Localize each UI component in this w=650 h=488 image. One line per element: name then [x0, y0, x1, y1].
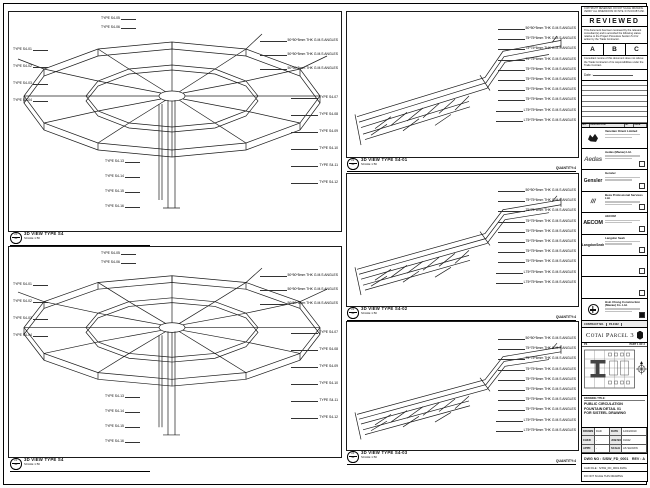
leader-label: L75*75*6mm THK G.M.S ANGLES: [524, 429, 576, 433]
venetian-logo-icon: [588, 134, 598, 142]
leader-label: TYPE S4-13: [105, 160, 124, 164]
consultant-row: Venetian Orient Limited: [582, 128, 647, 149]
leader-label: 75*75*6mm THK G.M.S ANGLES: [526, 47, 576, 51]
langdonseah-logo: LangdonSeah: [582, 235, 604, 255]
date-label: Date :: [584, 73, 593, 77]
leader-label: L75*75*6mm THK G.M.S ANGLES: [524, 281, 576, 285]
leader-label: 75*75*6mm THK G.M.S ANGLES: [526, 250, 576, 254]
leader-label: TYPE S4-15: [105, 190, 124, 194]
date-blank[interactable]: [593, 72, 633, 76]
copyright-note: COPYRIGHT RESERVED. DO NOT SCALE DRAWING…: [582, 7, 647, 16]
info-value: DAD: [595, 428, 610, 436]
leader-label: TYPE S4-04: [13, 99, 32, 103]
contract-strip: CONTRACT NO. P3-0102: [582, 321, 647, 328]
stamp-checkbox[interactable]: [639, 268, 645, 274]
address-line: [605, 134, 640, 135]
leader-label: TYPE S4-09: [319, 130, 338, 134]
view-panel-s4-02: 50*50*5mm THK G.M.S ANGLES75*75*6mm THK …: [346, 173, 579, 307]
leader-label: 75*75*6mm THK G.M.S ANGLES: [526, 408, 576, 412]
leader-label: 75*75*6mm THK G.M.S ANGLES: [526, 98, 576, 102]
company-name: Gensler: [605, 172, 646, 175]
view-scale: SCALE 1:50: [24, 237, 64, 240]
info-label: DATE: [610, 428, 622, 436]
leader-label: L75*75*6mm THK G.M.S ANGLES: [524, 271, 576, 275]
company-logo: [582, 128, 604, 148]
leader-label: TYPE S4-06: [101, 261, 120, 265]
consultant-row: [582, 256, 647, 277]
address-line: [605, 308, 640, 309]
leader-label: TYPE S4-12: [319, 181, 338, 185]
status-box-b[interactable]: B: [604, 44, 626, 55]
view-scale: SCALE 1:50: [361, 312, 407, 315]
consultant-row: Hsin Chong Construction (Macau) Co. Ltd.: [582, 299, 647, 320]
aecom-logo: AECOM: [582, 213, 604, 233]
leader-label: 75*75*6mm THK G.M.S ANGLES: [526, 378, 576, 382]
leader-label: 75*75*6mm THK G.M.S ANGLES: [526, 220, 576, 224]
drawing-title-label: DRAWING TITLE:: [584, 397, 645, 401]
company-logo: [582, 277, 604, 297]
status-abc-row: ABC: [582, 44, 647, 56]
consultant-rows: Venetian Orient Limited Aedas Aedas (Mac…: [582, 128, 647, 322]
leader-label: TYPE S4-09: [319, 365, 338, 369]
contract-label: CONTRACT NO.: [582, 323, 607, 326]
aedas-logo: Aedas: [582, 149, 604, 169]
leader-label: TYPE S4-10: [319, 382, 338, 386]
leader-label: 75*75*6mm THK G.M.S ANGLES: [526, 58, 576, 62]
leader-label: 75*75*6mm THK G.M.S ANGLES: [526, 88, 576, 92]
view-panel-type-s4-bottom: TYPE S4-01TYPE S4-02TYPE S4-03TYPE S4-04…: [8, 246, 342, 458]
company-name: Hsin Chong Construction (Macau) Co. Ltd.: [605, 301, 646, 307]
info-label: APPD: [582, 445, 595, 453]
address-line: [605, 222, 632, 223]
consultant-row: [582, 277, 647, 298]
consultant-row: LangdonSeah Langdon Seah: [582, 235, 647, 256]
caption-left-bottom: 21S4 3D VIEW TYPE S4SCALE 1:50: [10, 458, 150, 472]
consultant-row: AECOM AECOM: [582, 213, 647, 234]
leader-label: 75*75*6mm THK G.M.S ANGLES: [526, 68, 576, 72]
drawing-title-line: FOR S/STEEL DRAWING: [584, 411, 645, 415]
gensler-logo: Gensler: [582, 170, 604, 190]
contract-value: P3-0102: [607, 323, 622, 326]
detail-bubble: 23S4: [347, 307, 359, 319]
leader-label: TYPE S4-14: [105, 175, 124, 179]
sheet-number: S4: [349, 163, 357, 167]
stamp-checkbox[interactable]: [639, 290, 645, 296]
company-name: AECOM: [605, 215, 646, 218]
address-line: [605, 220, 640, 221]
company-name: Beca Professional Services Ltd.: [605, 194, 646, 200]
leader-label: TYPE S4-08: [319, 113, 338, 117]
cad-file-label: CAD FILE :: [584, 466, 598, 470]
reviewed-paragraph-1: This document has been reviewed by the r…: [582, 27, 647, 44]
info-value: -: [595, 445, 610, 453]
status-box-c[interactable]: C: [626, 44, 647, 55]
view-panel-s4-03: 50*50*5mm THK G.M.S ANGLES75*75*6mm THK …: [346, 321, 579, 451]
drawing-sheet: { "panels": { "left": [ { "bubble": {"to…: [0, 0, 650, 488]
leader-label: TYPE S4-14: [105, 410, 124, 414]
reviewed-stamp-title: REVIEWED: [582, 16, 647, 27]
leader-label: 50*50*5mm THK G.M.S ANGLES: [288, 67, 338, 71]
leader-label: 50*50*5mm THK G.M.S ANGLES: [526, 189, 576, 193]
address-line: [605, 311, 632, 312]
drawing-title-box: DRAWING TITLE: PUBLIC CIRCULATIONFOUNTAI…: [582, 396, 647, 428]
leader-label: TYPE S4-12: [319, 416, 338, 420]
cad-file-value: S/SW_FD_0001.DWG: [599, 466, 627, 470]
consultant-row: Gensler Gensler: [582, 170, 647, 191]
leader-label: TYPE S4-15: [105, 425, 124, 429]
dwg-no: DWG NO : S/SW_FD_0001: [584, 457, 628, 461]
leader-label: TYPE S4-07: [319, 96, 338, 100]
leader-label: TYPE S4-02: [13, 65, 32, 69]
stamp-checkbox[interactable]: [639, 312, 645, 318]
leader-label: TYPE S4-16: [105, 205, 124, 209]
company-logo: [582, 256, 604, 276]
date-line: Date :: [582, 70, 647, 81]
key-plan: P3 PART 1 OF 2: [582, 343, 647, 396]
view-scale: SCALE 1:50: [361, 456, 407, 459]
status-box-a[interactable]: A: [582, 44, 604, 55]
leader-label: 75*75*6mm THK G.M.S ANGLES: [526, 37, 576, 41]
sheet-number: S4: [12, 463, 20, 467]
leader-label: TYPE S4-16: [105, 440, 124, 444]
detail-bubble: 21S4: [10, 458, 22, 470]
leader-label: TYPE S4-05: [101, 252, 120, 256]
stamp-checkbox[interactable]: [639, 204, 645, 210]
leader-label: TYPE S4-11: [319, 399, 338, 403]
keyplan-right-label: PART 1 OF 2: [629, 343, 645, 346]
leader-label: TYPE S4-04: [13, 334, 32, 338]
info-label: DRAWN: [582, 428, 595, 436]
quantity-label: QUANTITY:4: [556, 166, 576, 170]
hsinchong-logo-icon: [588, 304, 599, 315]
revision-header: NO.DESCRIPTIONBYDATE: [582, 123, 647, 127]
leader-label: 50*50*5mm THK G.M.S ANGLES: [288, 274, 338, 278]
company-name: Aedas (Macau) Ltd.: [605, 151, 646, 154]
info-value: AS SHOWN: [622, 445, 647, 453]
leader-label: 50*50*5mm THK G.M.S ANGLES: [526, 337, 576, 341]
cad-file-row: CAD FILE : S/SW_FD_0001.DWG: [582, 464, 647, 472]
project-emblem-icon: [637, 331, 643, 340]
leader-label: 75*75*6mm THK G.M.S ANGLES: [526, 368, 576, 372]
leader-label: 75*75*6mm THK G.M.S ANGLES: [526, 398, 576, 402]
leader-label: TYPE S4-06: [101, 26, 120, 30]
quantity-label: QUANTITY:4: [556, 315, 576, 319]
project-row: Cotai Parcel 3: [582, 328, 647, 343]
detail-bubble: 24S4: [347, 451, 359, 463]
company-info: Venetian Orient Limited: [604, 128, 647, 148]
leader-label: L75*75*6mm THK G.M.S ANGLES: [524, 109, 576, 113]
address-line: [605, 158, 632, 159]
caption-s4-01: 22S4 3D VIEW TYPE S4-01SCALE 1:50 QUANTI…: [347, 158, 576, 172]
leader-label: TYPE S4-03: [13, 82, 32, 86]
truss-structure-drawing: [347, 12, 578, 157]
stamp-checkbox[interactable]: [639, 161, 645, 167]
view-panel-s4-01: 50*50*5mm THK G.M.S ANGLES75*75*6mm THK …: [346, 11, 579, 158]
leader-label: 75*75*6mm THK G.M.S ANGLES: [526, 240, 576, 244]
leader-label: TYPE S4-05: [101, 17, 120, 21]
caption-left-top: 20S4 3D VIEW TYPE S4SCALE 1:50: [10, 232, 150, 246]
leader-label: 75*75*6mm THK G.M.S ANGLES: [526, 388, 576, 392]
detail-bubble: 20S4: [10, 232, 22, 244]
quantity-label: QUANTITY:4: [556, 459, 576, 463]
view-panel-type-s4-top: TYPE S4-01TYPE S4-02TYPE S4-03TYPE S4-04…: [8, 11, 342, 232]
leader-label: 75*75*6mm THK G.M.S ANGLES: [526, 78, 576, 82]
address-line: [605, 201, 640, 202]
address-line: [605, 243, 632, 244]
company-logo: [582, 299, 604, 320]
address-line: [605, 241, 640, 242]
company-name: Langdon Seah: [605, 237, 646, 240]
revision-table: NO.DESCRIPTIONBYDATE: [582, 81, 647, 128]
sheet-number: S4: [349, 456, 357, 460]
north-arrow-icon: [636, 362, 647, 375]
project-name: Cotai Parcel 3: [586, 332, 634, 339]
leader-label: TYPE S4-02: [13, 300, 32, 304]
sheet-number: S4: [349, 312, 357, 316]
drawing-info-grid: DRAWNDADDATE12/04/2010CHKD-JOB NO01042AP…: [582, 428, 647, 454]
leader-label: TYPE S4-07: [319, 331, 338, 335]
stamp-checkbox[interactable]: [639, 183, 645, 189]
leader-label: 50*50*5mm THK G.M.S ANGLES: [288, 302, 338, 306]
consultant-row: /// Beca Professional Services Ltd.: [582, 192, 647, 213]
info-value: 12/04/2010: [622, 428, 647, 436]
address-line: [605, 155, 640, 156]
leader-label: 75*75*6mm THK G.M.S ANGLES: [526, 209, 576, 213]
sheet-number: S4: [12, 237, 20, 241]
leader-label: L75*75*6mm THK G.M.S ANGLES: [524, 119, 576, 123]
leader-label: 75*75*6mm THK G.M.S ANGLES: [526, 230, 576, 234]
stamp-checkbox[interactable]: [639, 247, 645, 253]
leader-label: L75*75*6mm THK G.M.S ANGLES: [524, 419, 576, 423]
no-scale-note: DO NOT SCALE THIS DRAWING: [582, 472, 647, 481]
logo-logo: ///: [580, 192, 606, 212]
canopy-structure-drawing: [9, 12, 341, 231]
keyplan-left-label: P3: [584, 343, 587, 346]
stamp-checkbox[interactable]: [639, 226, 645, 232]
leader-label: 50*50*5mm THK G.M.S ANGLES: [526, 27, 576, 31]
caption-s4-03: 24S4 3D VIEW TYPE S4-03SCALE 1:50 QUANTI…: [347, 451, 576, 465]
drawing-number-row: DWG NO : S/SW_FD_0001 REV : A: [582, 454, 647, 464]
leader-label: TYPE S4-08: [319, 348, 338, 352]
detail-bubble: 22S4: [347, 158, 359, 170]
leader-label: TYPE S4-10: [319, 147, 338, 151]
keyplan-map: [582, 347, 647, 393]
leader-label: 50*50*5mm THK G.M.S ANGLES: [288, 288, 338, 292]
address-line: [605, 177, 640, 178]
leader-label: TYPE S4-01: [13, 283, 32, 287]
title-block: COPYRIGHT RESERVED. DO NOT SCALE DRAWING…: [581, 6, 648, 482]
view-scale: SCALE 1:50: [24, 463, 64, 466]
info-label: JOB NO: [610, 436, 622, 444]
leader-label: 75*75*6mm THK G.M.S ANGLES: [526, 199, 576, 203]
leader-label: TYPE S4-11: [319, 164, 338, 168]
leader-label: TYPE S4-13: [105, 395, 124, 399]
view-scale: SCALE 1:50: [361, 163, 407, 166]
leader-label: TYPE S4-01: [13, 48, 32, 52]
revision-code: REV : A: [632, 457, 645, 461]
consultant-row: Aedas Aedas (Macau) Ltd.: [582, 149, 647, 170]
leader-label: 75*75*6mm THK G.M.S ANGLES: [526, 357, 576, 361]
info-label: SCALE: [610, 445, 622, 453]
leader-label: 50*50*5mm THK G.M.S ANGLES: [288, 53, 338, 57]
info-value: 01042: [622, 436, 647, 444]
address-line: [605, 137, 632, 138]
reviewed-paragraph-2: Consultant review of this document does …: [582, 56, 647, 70]
address-line: [605, 204, 632, 205]
company-name: Venetian Orient Limited: [605, 130, 646, 133]
caption-s4-02: 23S4 3D VIEW TYPE S4-02SCALE 1:50 QUANTI…: [347, 307, 576, 321]
drawing-title-lines: PUBLIC CIRCULATIONFOUNTAIN DETAIL 01FOR …: [584, 402, 645, 415]
canopy-structure-drawing: [9, 247, 341, 457]
info-label: CHKD: [582, 436, 595, 444]
address-line: [605, 179, 632, 180]
leader-label: 75*75*6mm THK G.M.S ANGLES: [526, 260, 576, 264]
leader-label: TYPE S4-03: [13, 317, 32, 321]
info-value: -: [595, 436, 610, 444]
leader-label: 75*75*6mm THK G.M.S ANGLES: [526, 347, 576, 351]
leader-label: 50*50*5mm THK G.M.S ANGLES: [288, 39, 338, 43]
